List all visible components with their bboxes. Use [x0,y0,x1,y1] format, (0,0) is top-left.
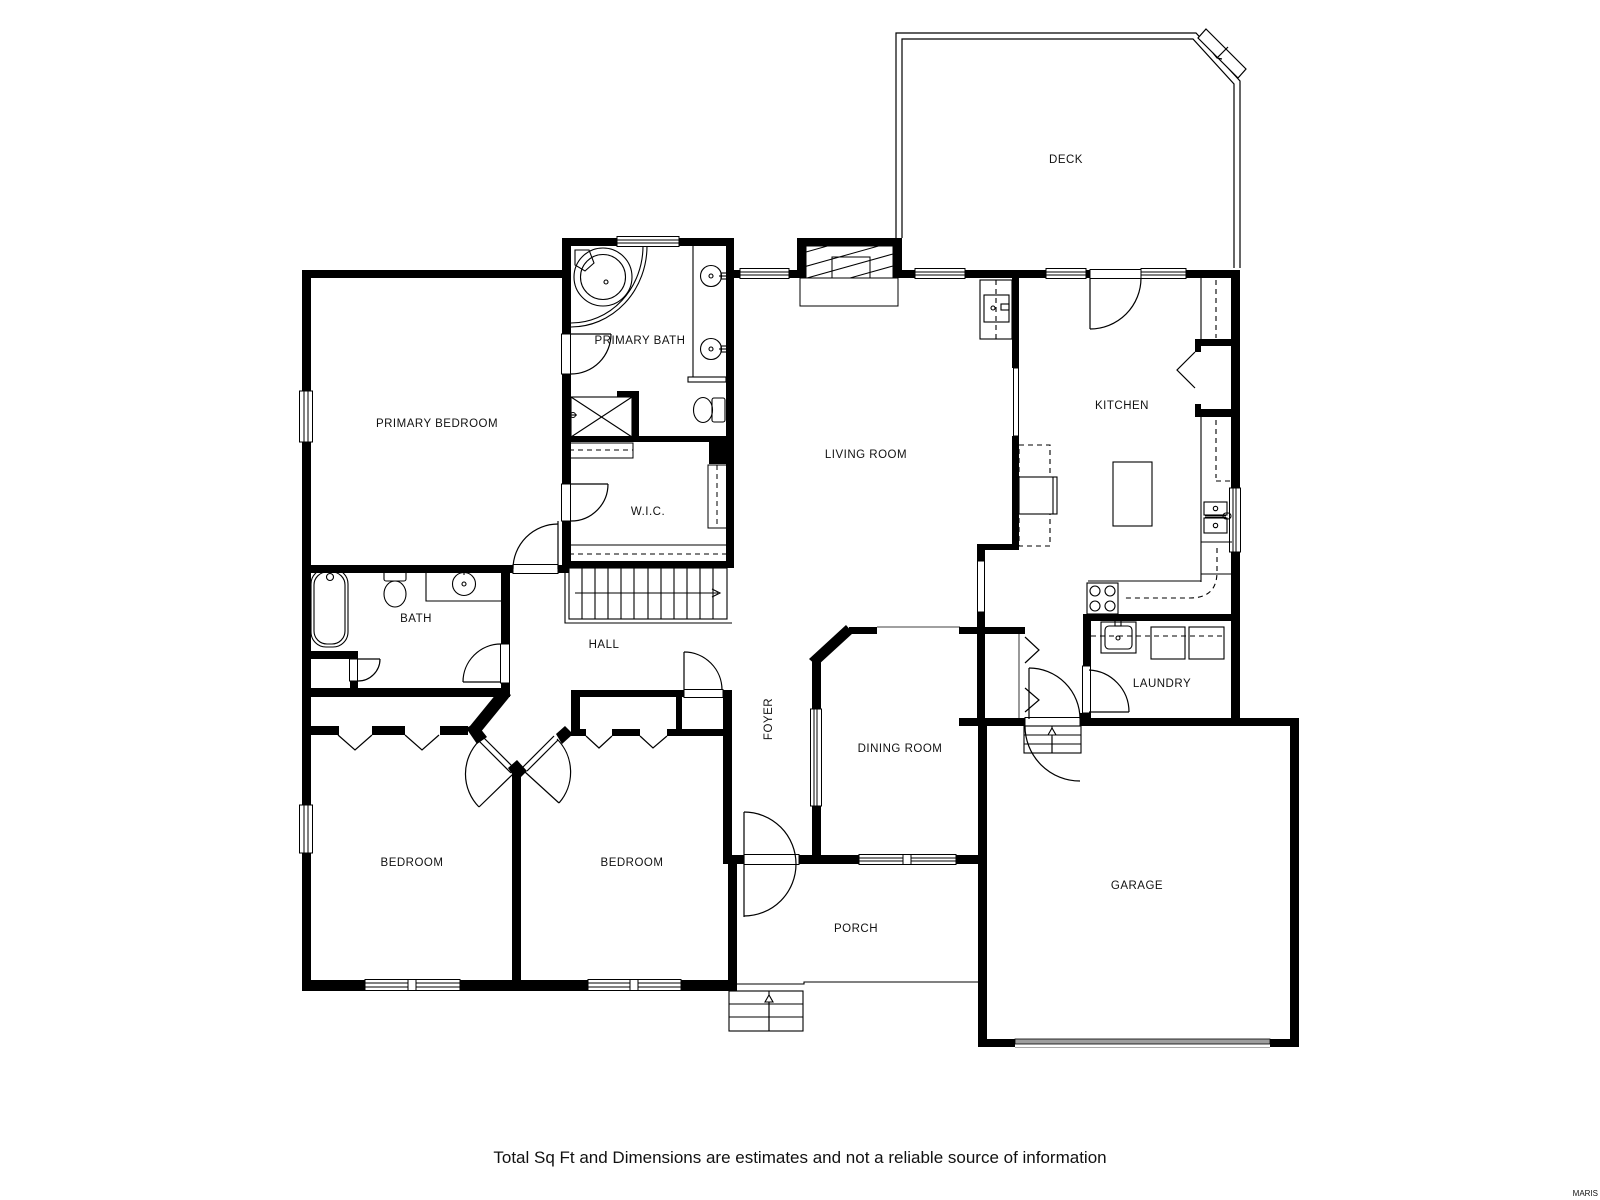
svg-text:FOYER: FOYER [763,698,775,740]
svg-text:GARAGE: GARAGE [1111,880,1163,892]
svg-text:PRIMARY BEDROOM: PRIMARY BEDROOM [376,418,498,430]
svg-text:LAUNDRY: LAUNDRY [1133,678,1191,690]
svg-text:HALL: HALL [589,639,620,651]
svg-text:PORCH: PORCH [834,923,878,935]
svg-text:Total Sq Ft and Dimensions are: Total Sq Ft and Dimensions are estimates… [493,1148,1106,1167]
svg-text:BEDROOM: BEDROOM [381,857,444,869]
svg-text:PRIMARY BATH: PRIMARY BATH [595,335,686,347]
svg-text:DECK: DECK [1049,154,1083,166]
svg-text:LIVING ROOM: LIVING ROOM [825,449,907,461]
svg-text:MARIS: MARIS [1573,1189,1598,1198]
svg-text:DINING ROOM: DINING ROOM [858,743,943,755]
svg-text:W.I.C.: W.I.C. [631,506,665,518]
svg-text:BEDROOM: BEDROOM [601,857,664,869]
svg-text:BATH: BATH [400,613,432,625]
svg-text:KITCHEN: KITCHEN [1095,400,1149,412]
